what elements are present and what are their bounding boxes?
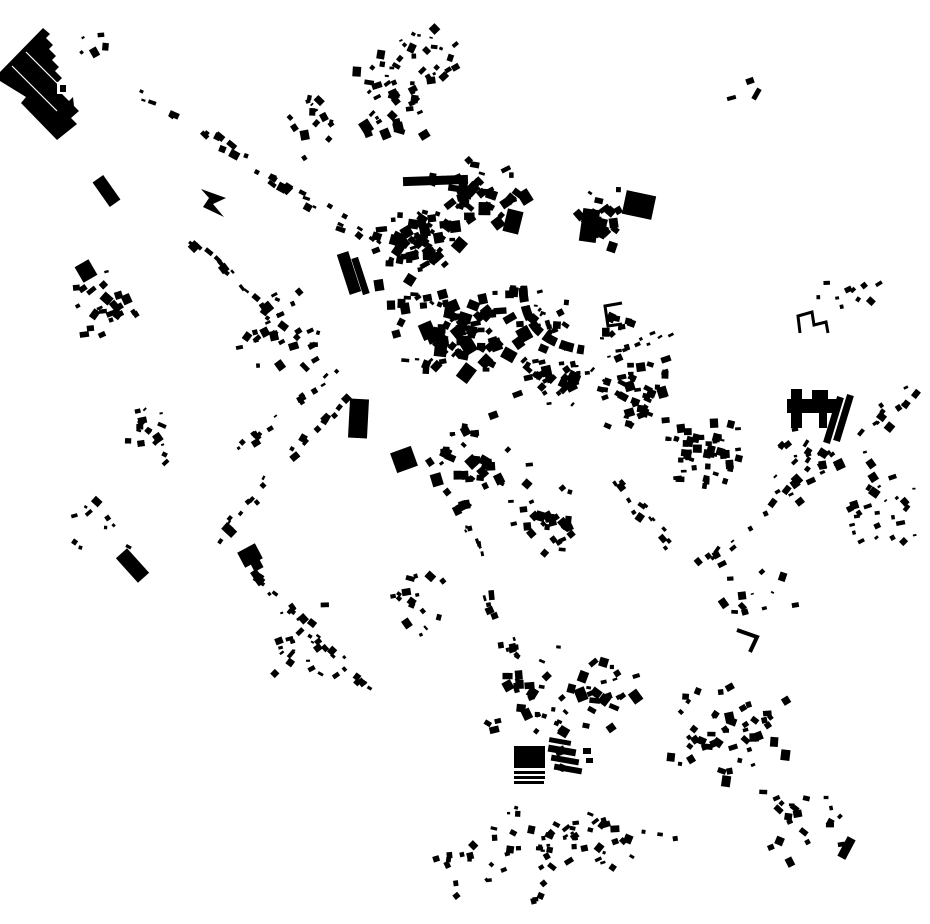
building-footprint xyxy=(587,706,597,714)
building-footprint xyxy=(521,478,532,489)
building-footprint xyxy=(307,634,312,639)
building-footprint xyxy=(134,408,141,414)
building-footprint xyxy=(608,863,617,872)
building-footprint xyxy=(874,511,879,515)
building-footprint xyxy=(875,280,883,287)
building-footprint xyxy=(835,296,839,299)
building-footprint xyxy=(431,45,438,50)
building-footprint xyxy=(470,161,480,168)
building-footprint xyxy=(425,457,435,467)
building-footprint xyxy=(298,189,306,196)
building-footprint xyxy=(816,295,820,299)
building-footprint xyxy=(294,327,302,335)
building-footprint xyxy=(865,458,876,469)
building-footprint xyxy=(159,412,163,415)
building-footprint xyxy=(726,768,733,775)
building-footprint xyxy=(99,309,107,314)
building-footprint xyxy=(526,463,533,467)
building-footprint xyxy=(379,127,391,140)
building-footprint xyxy=(837,813,843,819)
building-footprint xyxy=(396,317,405,327)
building-footprint xyxy=(603,377,612,386)
building-footprint xyxy=(690,725,699,734)
building-footprint xyxy=(390,446,418,473)
building-footprint xyxy=(242,331,253,342)
building-footprint xyxy=(434,341,448,357)
building-footprint xyxy=(406,42,416,53)
building-footprint xyxy=(632,673,640,679)
building-footprint xyxy=(587,812,594,817)
building-footprint xyxy=(141,99,146,102)
building-footprint xyxy=(774,489,780,495)
building-footprint xyxy=(230,269,235,274)
building-footprint xyxy=(93,175,121,207)
building-footprint xyxy=(628,689,644,705)
building-footprint xyxy=(823,281,830,285)
building-footprint xyxy=(514,746,545,768)
building-footprint xyxy=(373,279,384,292)
building-footprint xyxy=(546,402,551,405)
building-footprint xyxy=(399,39,403,42)
building-footprint xyxy=(773,474,777,478)
building-footprint xyxy=(295,627,304,636)
building-footprint xyxy=(724,711,735,723)
building-footprint xyxy=(866,296,876,306)
building-footprint xyxy=(746,747,752,753)
building-footprint xyxy=(721,775,731,787)
building-footprint xyxy=(826,823,834,828)
building-footprint xyxy=(335,403,342,411)
building-footprint xyxy=(516,846,521,851)
building-footprint xyxy=(137,416,147,424)
building-footprint xyxy=(490,826,497,831)
building-footprint xyxy=(877,485,881,489)
building-footprint xyxy=(791,389,802,428)
building-footprint xyxy=(896,520,906,526)
building-footprint xyxy=(681,470,687,473)
building-footprint xyxy=(805,456,812,463)
building-footprint xyxy=(237,446,241,450)
building-footprint xyxy=(571,844,576,850)
building-footprint xyxy=(436,301,442,307)
building-footprint xyxy=(236,345,244,350)
building-footprint xyxy=(895,404,903,412)
building-footprint xyxy=(465,476,473,482)
building-footprint xyxy=(429,23,441,35)
building-footprint xyxy=(259,482,266,489)
building-footprint xyxy=(307,665,315,672)
building-footprint xyxy=(261,475,265,480)
building-footprint xyxy=(290,123,299,132)
building-footprint xyxy=(600,337,604,340)
building-footprint xyxy=(390,594,396,599)
building-footprint xyxy=(430,472,444,487)
building-footprint xyxy=(376,226,388,233)
building-footprint xyxy=(504,446,511,453)
building-footprint xyxy=(758,568,765,575)
building-footprint xyxy=(411,54,416,59)
building-footprint xyxy=(139,89,144,94)
building-footprint xyxy=(449,238,455,241)
building-footprint xyxy=(603,422,611,429)
building-footprint xyxy=(327,203,334,209)
building-footprint xyxy=(289,451,300,462)
building-footprint xyxy=(740,735,750,745)
building-footprint xyxy=(464,213,475,221)
building-footprint xyxy=(108,317,114,323)
building-footprint xyxy=(693,444,702,452)
building-footprint xyxy=(143,407,147,411)
building-footprint xyxy=(824,796,829,799)
building-footprint xyxy=(663,545,668,550)
building-footprint xyxy=(452,41,459,48)
building-footprint xyxy=(894,496,899,501)
building-footprint xyxy=(580,845,588,852)
building-footprint xyxy=(252,329,258,335)
building-footprint xyxy=(278,646,283,650)
building-footprint xyxy=(712,471,719,476)
building-footprint xyxy=(161,451,168,457)
building-footprint xyxy=(533,728,540,735)
building-footprint xyxy=(277,320,289,331)
building-footprint xyxy=(228,149,240,161)
building-footprint xyxy=(410,81,415,85)
building-footprint xyxy=(725,682,735,692)
building-footprint xyxy=(676,424,685,434)
building-footprint xyxy=(751,593,754,595)
building-footprint xyxy=(911,389,921,399)
building-footprint xyxy=(749,733,759,742)
building-footprint xyxy=(375,116,380,121)
building-footprint xyxy=(804,465,811,472)
building-footprint xyxy=(682,693,689,700)
building-footprint xyxy=(448,184,461,192)
building-footprint xyxy=(600,861,606,865)
building-footprint xyxy=(272,590,279,596)
building-footprint xyxy=(717,767,727,775)
building-footprint xyxy=(873,522,881,529)
building-footprint xyxy=(402,42,407,47)
building-footprint xyxy=(878,402,884,408)
building-footprint xyxy=(657,832,663,836)
building-footprint xyxy=(87,325,95,331)
building-footprint xyxy=(327,121,334,128)
building-footprint xyxy=(812,390,828,401)
building-footprint xyxy=(763,710,772,716)
building-footprint xyxy=(784,813,792,821)
building-footprint xyxy=(536,846,543,851)
building-footprint xyxy=(534,304,538,306)
building-footprint xyxy=(539,659,546,664)
building-footprint xyxy=(876,411,887,422)
building-footprint xyxy=(369,64,375,70)
building-footprint xyxy=(467,857,471,862)
building-footprint xyxy=(461,423,467,430)
building-footprint xyxy=(582,722,590,728)
building-footprint xyxy=(538,864,545,870)
building-footprint xyxy=(314,425,322,433)
building-footprint xyxy=(704,478,710,485)
building-footprint xyxy=(254,499,260,506)
building-footprint xyxy=(660,355,671,364)
building-footprint xyxy=(312,205,316,209)
building-footprint xyxy=(532,897,538,902)
building-footprint xyxy=(541,836,546,841)
building-footprint xyxy=(451,63,461,72)
building-footprint xyxy=(561,321,570,329)
building-footprint xyxy=(411,32,416,37)
building-footprint xyxy=(737,758,742,764)
building-footprint xyxy=(79,50,84,55)
building-footprint xyxy=(631,509,637,515)
building-footprint xyxy=(439,577,446,584)
building-footprint xyxy=(301,155,308,162)
building-footprint xyxy=(590,367,595,373)
building-footprint xyxy=(311,640,315,643)
building-footprint xyxy=(782,440,792,449)
building-footprint xyxy=(84,505,88,509)
building-footprint xyxy=(161,443,165,446)
building-footprint xyxy=(391,217,396,222)
building-footprint xyxy=(385,75,389,78)
building-footprint xyxy=(500,867,507,873)
building-footprint xyxy=(401,588,411,596)
building-footprint xyxy=(468,840,478,850)
building-footprint xyxy=(97,32,104,37)
building-footprint xyxy=(307,95,312,101)
building-footprint xyxy=(626,497,632,503)
building-footprint xyxy=(727,95,737,101)
building-footprint xyxy=(314,95,325,106)
building-footprint xyxy=(559,547,566,551)
building-footprint xyxy=(889,534,896,541)
building-footprint xyxy=(348,399,369,439)
building-footprint xyxy=(452,892,460,900)
building-footprint xyxy=(254,169,260,175)
building-footprint xyxy=(280,611,284,614)
building-footprint xyxy=(549,737,572,746)
building-footprint xyxy=(75,259,98,283)
building-footprint xyxy=(456,362,477,384)
building-footprint xyxy=(429,300,434,305)
building-footprint xyxy=(588,191,593,196)
building-footprint xyxy=(610,825,619,832)
building-footprint xyxy=(751,88,761,101)
building-footprint xyxy=(443,198,456,210)
building-footprint xyxy=(678,709,684,715)
building-footprint xyxy=(791,458,798,465)
building-footprint xyxy=(278,339,285,346)
building-footprint xyxy=(799,827,809,837)
building-footprint xyxy=(341,213,348,220)
building-footprint xyxy=(854,514,860,518)
building-footprint xyxy=(558,694,566,702)
building-footprint xyxy=(546,514,554,518)
building-footprint xyxy=(271,292,278,298)
building-footprint xyxy=(449,220,461,233)
building-footprint xyxy=(321,602,329,607)
building-footprint xyxy=(717,560,727,568)
building-footprint xyxy=(694,557,703,566)
building-footprint xyxy=(750,763,755,767)
building-footprint xyxy=(310,103,314,107)
building-footprint xyxy=(81,36,85,39)
building-footprint xyxy=(256,363,260,368)
building-footprint xyxy=(306,328,314,334)
building-footprint xyxy=(148,99,157,105)
building-footprint xyxy=(588,658,598,668)
building-footprint xyxy=(218,145,227,153)
building-footprint xyxy=(839,304,843,309)
building-footprint xyxy=(410,292,418,296)
building-footprint xyxy=(710,418,719,428)
building-footprint xyxy=(306,660,310,662)
building-footprint xyxy=(391,79,397,85)
building-footprint xyxy=(837,836,855,860)
building-footprint xyxy=(371,247,380,255)
building-footprint xyxy=(275,297,281,302)
building-footprint xyxy=(747,526,753,532)
building-footprint xyxy=(357,226,364,232)
building-footprint xyxy=(483,595,487,601)
building-footprint xyxy=(514,776,545,779)
building-footprint xyxy=(591,818,599,825)
building-footprint xyxy=(396,595,402,601)
building-footprint xyxy=(705,463,711,469)
building-footprint xyxy=(369,110,376,117)
building-footprint xyxy=(461,442,467,448)
building-footprint xyxy=(577,670,590,684)
building-footprint xyxy=(609,218,619,229)
building-footprint xyxy=(728,744,738,752)
building-footprint xyxy=(422,46,431,55)
building-footprint xyxy=(486,309,497,318)
building-footprint xyxy=(546,846,553,853)
building-footprint xyxy=(612,677,617,681)
building-footprint xyxy=(137,440,145,447)
building-footprint xyxy=(570,402,575,407)
building-footprint xyxy=(136,424,143,430)
building-footprint xyxy=(781,696,791,706)
building-footprint xyxy=(860,282,868,290)
building-footprint xyxy=(773,804,783,814)
building-footprint xyxy=(433,64,440,71)
building-footprint xyxy=(770,737,779,747)
building-footprint xyxy=(792,602,800,608)
building-footprint xyxy=(238,511,244,517)
building-clusters xyxy=(71,23,917,905)
building-footprint xyxy=(681,449,690,457)
building-footprint xyxy=(849,523,855,527)
building-footprint xyxy=(559,361,565,365)
building-footprint xyxy=(502,208,523,234)
building-footprint xyxy=(504,851,510,856)
building-footprint xyxy=(686,754,696,764)
building-footprint xyxy=(168,110,179,120)
building-footprint xyxy=(481,482,489,490)
building-footprint xyxy=(726,420,735,429)
building-footprint xyxy=(686,743,693,750)
building-footprint xyxy=(453,880,459,886)
building-footprint xyxy=(602,851,606,855)
building-footprint xyxy=(500,346,518,363)
building-footprint xyxy=(498,642,504,649)
building-footprint xyxy=(515,644,518,649)
building-footprint xyxy=(439,47,443,51)
landmark-factory-complex xyxy=(0,28,79,140)
building-footprint xyxy=(803,439,810,447)
building-footprint xyxy=(587,827,593,833)
building-footprint xyxy=(718,597,730,609)
building-footprint xyxy=(562,824,571,832)
building-footprint xyxy=(833,458,846,471)
building-footprint xyxy=(780,749,790,761)
building-footprint xyxy=(290,301,296,307)
building-footprint xyxy=(492,835,498,841)
building-footprint xyxy=(89,46,100,58)
building-footprint xyxy=(509,172,514,178)
street-aligned-buildings xyxy=(139,63,921,863)
building-footprint xyxy=(624,380,636,392)
building-footprint xyxy=(226,140,237,150)
building-footprint xyxy=(79,331,89,338)
building-footprint xyxy=(606,722,617,733)
building-footprint xyxy=(323,373,329,379)
building-footprint xyxy=(253,338,258,342)
building-footprint xyxy=(342,655,346,659)
building-footprint xyxy=(420,302,427,309)
building-footprint xyxy=(762,510,768,517)
building-footprint xyxy=(316,634,321,639)
building-footprint xyxy=(285,658,295,668)
building-footprint xyxy=(855,296,861,302)
building-footprint xyxy=(667,437,672,441)
building-footprint xyxy=(288,341,299,351)
building-footprint xyxy=(863,503,872,509)
building-footprint xyxy=(415,358,419,360)
building-footprint xyxy=(447,54,455,62)
building-footprint xyxy=(488,410,499,420)
building-footprint xyxy=(659,390,667,398)
building-footprint xyxy=(443,488,452,497)
building-footprint xyxy=(863,450,867,453)
building-footprint xyxy=(89,308,101,320)
building-footprint xyxy=(116,548,149,583)
building-footprint xyxy=(768,498,778,509)
building-footprint xyxy=(494,718,501,724)
building-footprint xyxy=(697,437,703,440)
building-footprint xyxy=(661,417,669,423)
building-footprint xyxy=(586,686,591,690)
building-footprint xyxy=(367,89,372,94)
building-footprint xyxy=(417,110,423,115)
building-footprint xyxy=(98,331,107,339)
building-footprint xyxy=(429,37,433,39)
building-footprint xyxy=(419,608,426,615)
building-footprint xyxy=(422,209,429,215)
building-footprint xyxy=(311,356,320,364)
building-footprint xyxy=(634,342,641,348)
building-footprint xyxy=(464,529,467,533)
building-footprint xyxy=(279,650,284,655)
building-footprint xyxy=(558,484,566,492)
building-footprint xyxy=(335,225,346,233)
building-footprint xyxy=(406,256,412,263)
building-footprint xyxy=(610,665,614,669)
building-footprint xyxy=(243,153,249,159)
building-footprint xyxy=(391,329,401,339)
building-footprint xyxy=(104,526,107,530)
